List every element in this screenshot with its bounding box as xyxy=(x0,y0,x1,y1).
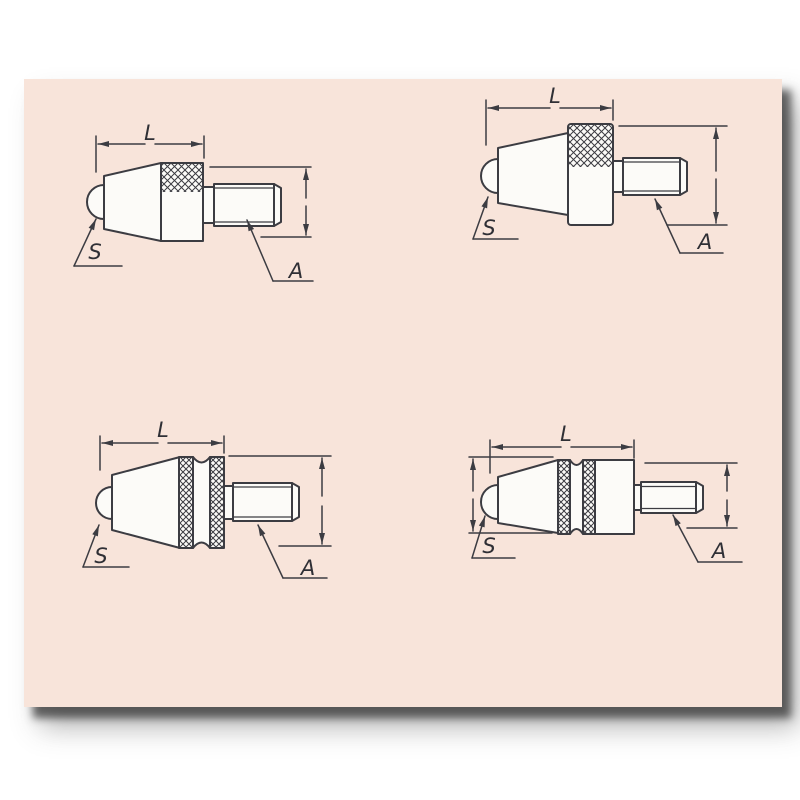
part-body xyxy=(96,457,299,548)
thread-label: A xyxy=(696,230,712,254)
ball-label: S xyxy=(94,544,107,568)
contact-point-drawing-bottom-right: L S A xyxy=(469,422,742,563)
length-label: L xyxy=(157,418,169,442)
neck xyxy=(634,485,641,510)
ball-tip xyxy=(87,185,104,219)
part-body xyxy=(481,124,687,225)
ball-label: S xyxy=(482,216,495,240)
contact-point-drawing-bottom-left: L S A xyxy=(83,418,331,580)
threaded-stem xyxy=(623,158,687,195)
cylinder-body xyxy=(595,460,634,534)
contact-point-drawing-top-right: L S A xyxy=(473,84,727,254)
neck xyxy=(224,486,233,519)
length-label: L xyxy=(144,121,156,145)
knurl-texture xyxy=(584,461,594,533)
drawing-panel: L S A xyxy=(24,79,782,707)
groove xyxy=(570,460,583,534)
knurl-texture xyxy=(211,458,223,547)
length-label: L xyxy=(549,84,561,108)
thread-label: A xyxy=(710,539,726,563)
leader-A: A xyxy=(258,525,327,580)
contact-point-drawing-top-left: L S A xyxy=(74,121,313,283)
part-body xyxy=(87,163,281,241)
ball-label: S xyxy=(482,534,495,558)
knurl-texture xyxy=(162,164,202,192)
leader-A: A xyxy=(655,199,723,254)
knurl-texture xyxy=(180,458,192,547)
leader-A: A xyxy=(247,220,313,283)
cone-body xyxy=(498,460,558,533)
ball-tip xyxy=(481,159,498,193)
thread-label: A xyxy=(299,556,315,580)
part-body xyxy=(481,460,703,534)
technical-drawing-canvas: L S A xyxy=(24,79,782,707)
leader-A: A xyxy=(673,515,742,563)
groove xyxy=(193,457,210,548)
neck xyxy=(613,161,623,192)
length-label: L xyxy=(560,422,572,446)
knurl-texture xyxy=(559,461,569,533)
cone-body xyxy=(498,133,568,215)
cone-body xyxy=(104,163,161,241)
neck xyxy=(203,187,214,223)
cone-body xyxy=(112,457,180,548)
knurl-texture xyxy=(569,125,612,167)
threaded-stem xyxy=(233,483,299,521)
ball-label: S xyxy=(88,240,101,264)
ball-tip xyxy=(481,485,498,519)
ball-tip xyxy=(96,487,112,519)
thread-label: A xyxy=(287,259,303,283)
